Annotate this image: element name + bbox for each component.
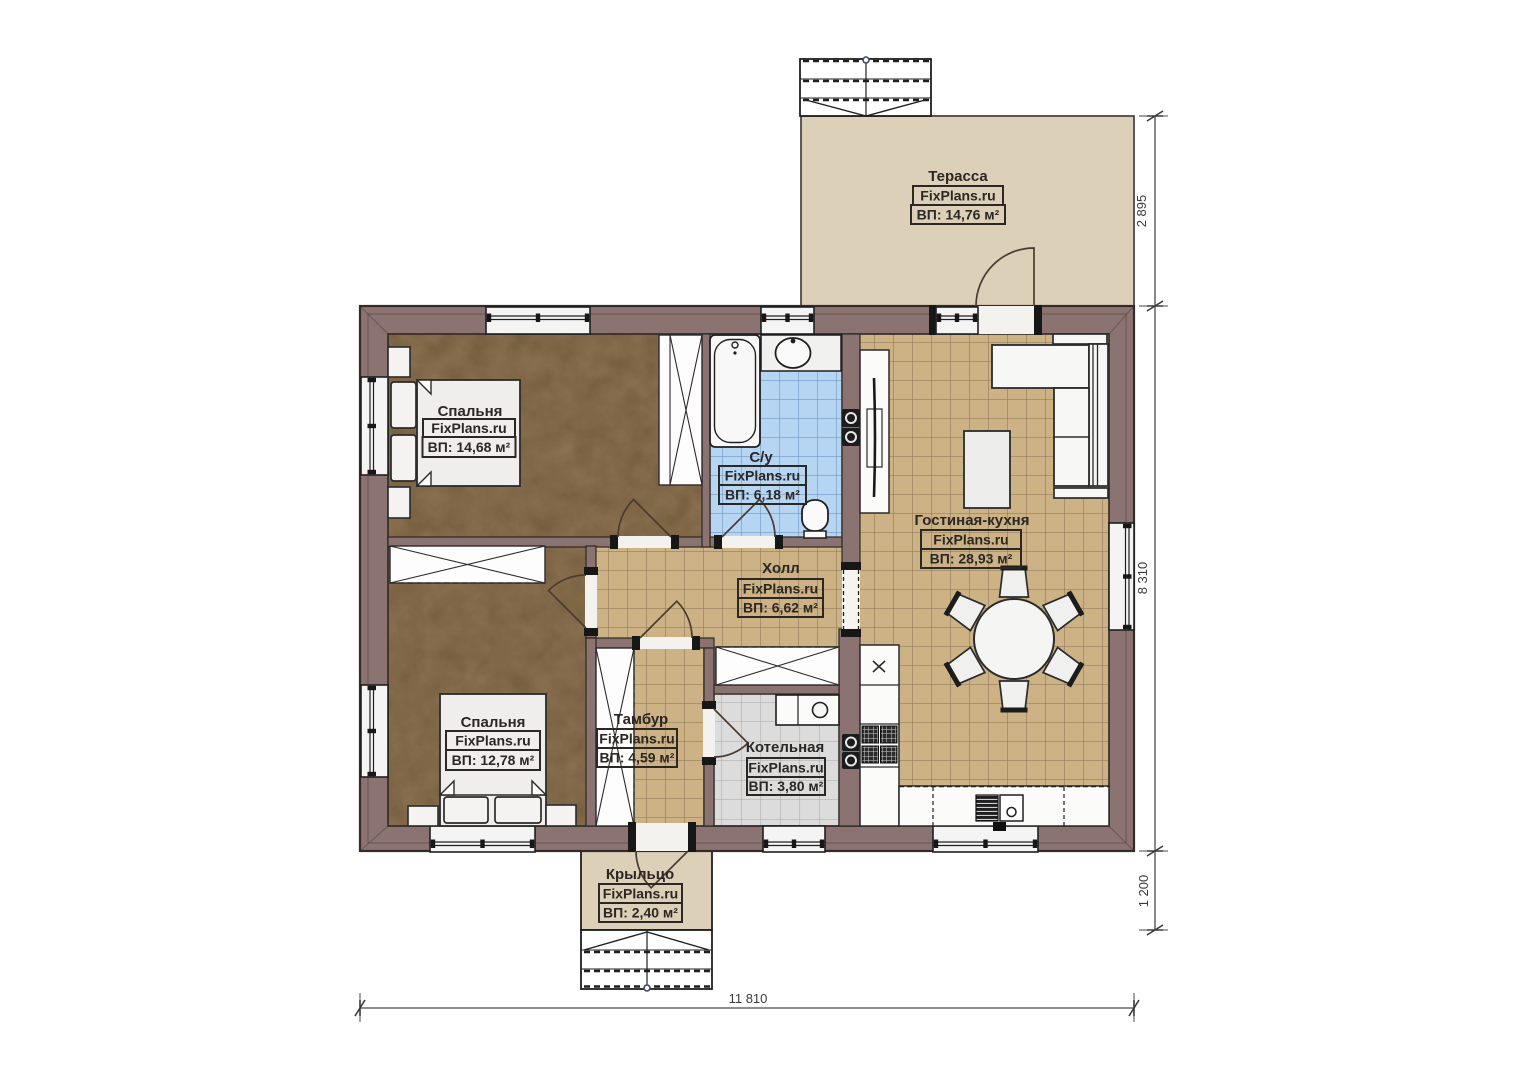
svg-text:FixPlans.ru: FixPlans.ru xyxy=(743,581,818,597)
svg-text:ВП: 2,40 м²: ВП: 2,40 м² xyxy=(603,905,678,921)
svg-text:FixPlans.ru: FixPlans.ru xyxy=(933,532,1008,548)
svg-text:11 810: 11 810 xyxy=(729,991,768,1006)
svg-text:Спальня: Спальня xyxy=(438,403,503,420)
svg-text:FixPlans.ru: FixPlans.ru xyxy=(455,733,530,749)
svg-text:ВП: 6,18 м²: ВП: 6,18 м² xyxy=(725,487,800,503)
svg-text:FixPlans.ru: FixPlans.ru xyxy=(603,886,678,902)
svg-text:Терасса: Терасса xyxy=(928,168,988,185)
svg-text:Гостиная-кухня: Гостиная-кухня xyxy=(915,512,1030,529)
svg-text:Котельная: Котельная xyxy=(746,739,825,756)
svg-text:ВП: 6,62 м²: ВП: 6,62 м² xyxy=(743,600,818,616)
svg-text:ВП: 14,68 м²: ВП: 14,68 м² xyxy=(428,439,511,455)
svg-text:ВП: 14,76 м²: ВП: 14,76 м² xyxy=(917,207,1000,223)
svg-text:ВП: 4,59 м²: ВП: 4,59 м² xyxy=(600,750,675,766)
svg-text:Холл: Холл xyxy=(762,560,800,577)
svg-text:ВП: 28,93 м²: ВП: 28,93 м² xyxy=(930,551,1013,567)
svg-text:FixPlans.ru: FixPlans.ru xyxy=(748,760,823,776)
svg-text:Тамбур: Тамбур xyxy=(614,711,668,728)
svg-text:FixPlans.ru: FixPlans.ru xyxy=(599,731,674,747)
svg-text:FixPlans.ru: FixPlans.ru xyxy=(920,188,995,204)
svg-text:Спальня: Спальня xyxy=(461,714,526,731)
svg-text:2 895: 2 895 xyxy=(1134,195,1149,228)
svg-text:С/у: С/у xyxy=(749,449,773,466)
svg-text:ВП: 12,78 м²: ВП: 12,78 м² xyxy=(452,752,535,768)
svg-text:FixPlans.ru: FixPlans.ru xyxy=(725,468,800,484)
svg-text:8 310: 8 310 xyxy=(1135,562,1150,595)
svg-text:1 200: 1 200 xyxy=(1136,875,1151,908)
svg-text:Крыльцо: Крыльцо xyxy=(606,866,674,883)
svg-text:ВП: 3,80 м²: ВП: 3,80 м² xyxy=(749,778,824,794)
svg-text:FixPlans.ru: FixPlans.ru xyxy=(431,420,506,436)
